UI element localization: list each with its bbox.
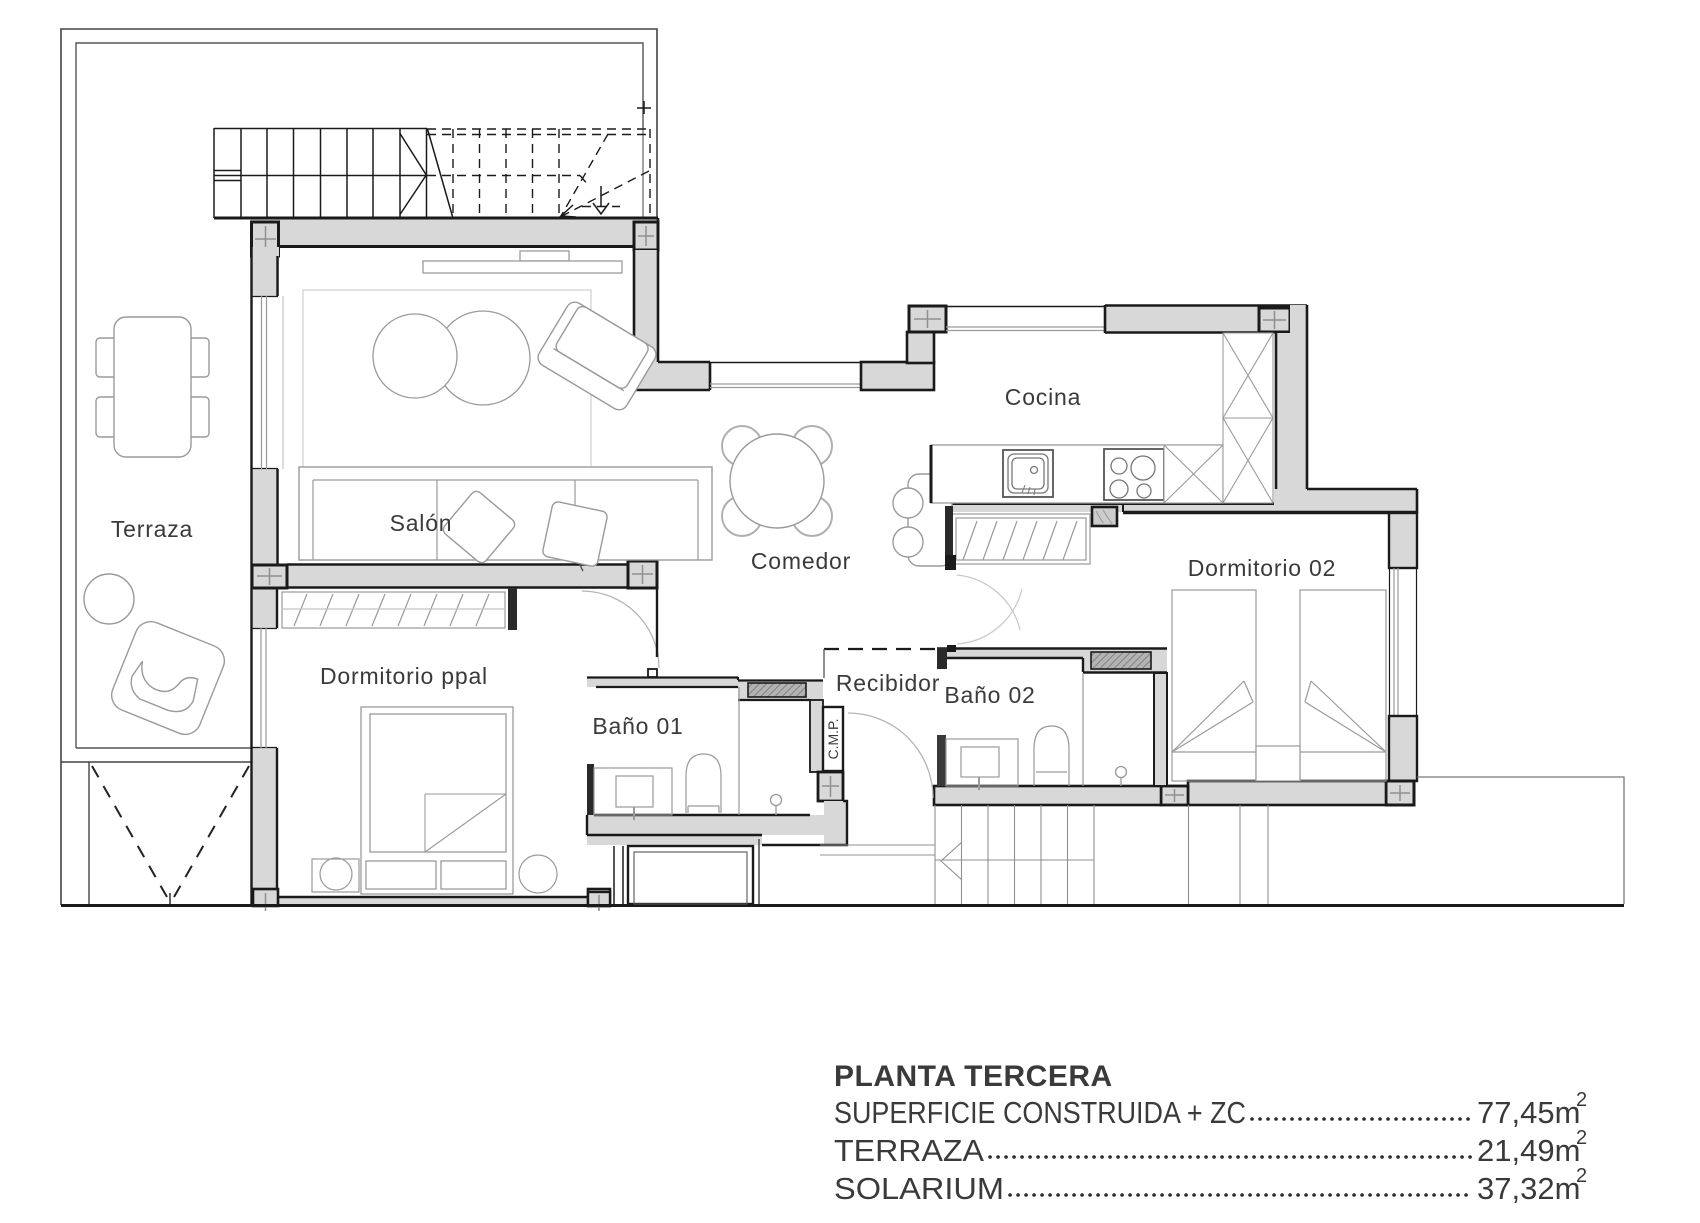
svg-text:TERRAZA: TERRAZA <box>834 1133 984 1168</box>
svg-text:Cocina: Cocina <box>1005 384 1081 410</box>
svg-text:2: 2 <box>1576 1127 1587 1149</box>
svg-text:37,32m: 37,32m <box>1477 1171 1580 1206</box>
svg-text:2: 2 <box>1576 1165 1587 1187</box>
svg-text:Terraza: Terraza <box>111 516 193 542</box>
svg-text:Salón: Salón <box>390 510 453 536</box>
svg-text:SOLARIUM: SOLARIUM <box>834 1171 1004 1206</box>
svg-text:77,45m: 77,45m <box>1477 1095 1580 1130</box>
svg-text:Dormitorio 02: Dormitorio 02 <box>1188 555 1336 581</box>
svg-text:Dormitorio ppal: Dormitorio ppal <box>320 663 488 689</box>
svg-text:SUPERFICIE CONSTRUIDA + ZC: SUPERFICIE CONSTRUIDA + ZC <box>834 1095 1246 1130</box>
svg-text:Comedor: Comedor <box>751 548 851 574</box>
svg-text:PLANTA TERCERA: PLANTA TERCERA <box>834 1060 1113 1093</box>
svg-text:Recibidor: Recibidor <box>836 670 940 696</box>
svg-text:2: 2 <box>1576 1089 1587 1111</box>
svg-text:Baño 01: Baño 01 <box>592 713 683 739</box>
svg-text:21,49m: 21,49m <box>1477 1133 1580 1168</box>
svg-text:Baño 02: Baño 02 <box>944 682 1035 708</box>
svg-text:C.M.P.: C.M.P. <box>825 719 841 760</box>
